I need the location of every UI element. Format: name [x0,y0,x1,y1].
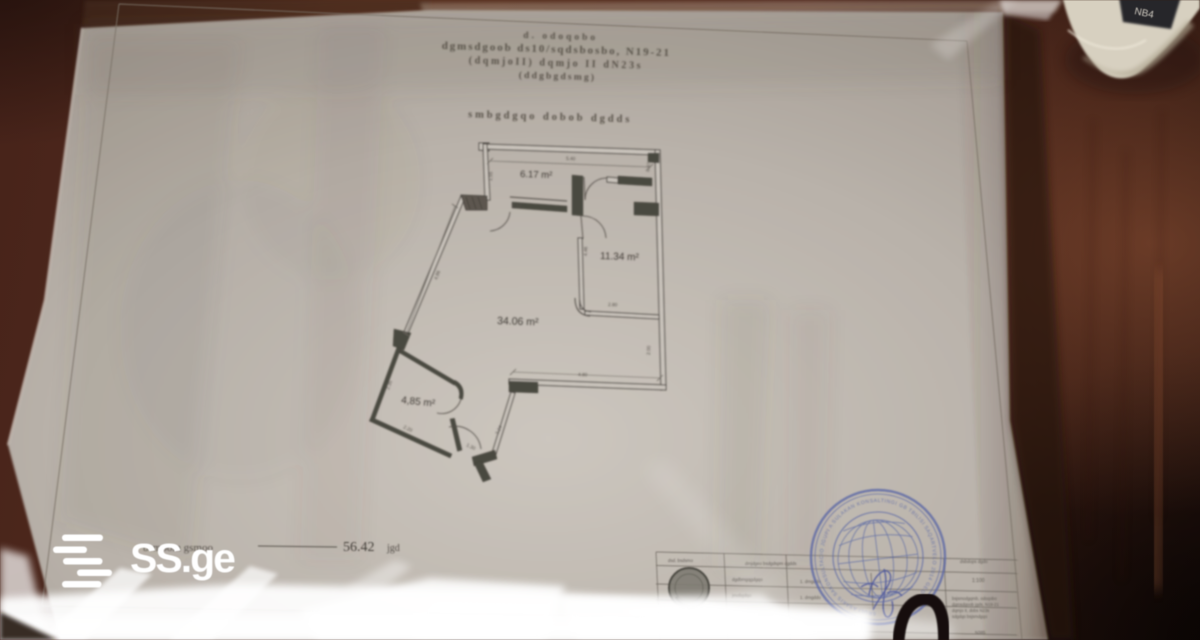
svg-text:1.55: 1.55 [488,171,494,181]
svg-text:2.00: 2.00 [646,345,652,355]
svg-text:5.40: 5.40 [566,156,576,162]
svg-text:1. dmgddo: 1. dmgddo [800,595,821,600]
svg-text:11.34 m²: 11.34 m² [600,251,640,263]
svg-text:56.42: 56.42 [343,540,375,555]
svg-text:bsjsmodgqmb, odoqobo: bsjsmodgqmb, odoqobo [952,596,997,601]
svg-text:dgmsdgoob jgds, N19-21: dgmsdgoob jgds, N19-21 [952,602,999,607]
svg-text:dqmjo II, dobs N23s: dqmjo II, dobs N23s [952,608,989,613]
svg-text:dsd. bsdsmo: dsd. bsdsmo [668,558,693,563]
svg-text:34.06 m²: 34.06 m² [497,315,539,328]
svg-text:4.46: 4.46 [583,246,589,256]
svg-text:SS.ge: SS.ge [130,535,235,581]
svg-text:1:100: 1:100 [972,578,985,584]
svg-text:N385: N385 [975,630,986,635]
svg-text:dsbdops dgdo: dsbdops dgdo [960,559,988,564]
svg-text:jgd: jgd [386,543,400,554]
svg-text:1. dmgddo: 1. dmgddo [800,579,821,584]
svg-text:3.52: 3.52 [512,203,522,209]
svg-text:6.17 m²: 6.17 m² [520,169,553,181]
svg-text:2.80: 2.80 [608,302,618,308]
svg-text:sdgdqo bsjsmdgqo: sdgdqo bsjsmdgqo [952,614,988,619]
svg-text:4.80: 4.80 [578,372,588,378]
